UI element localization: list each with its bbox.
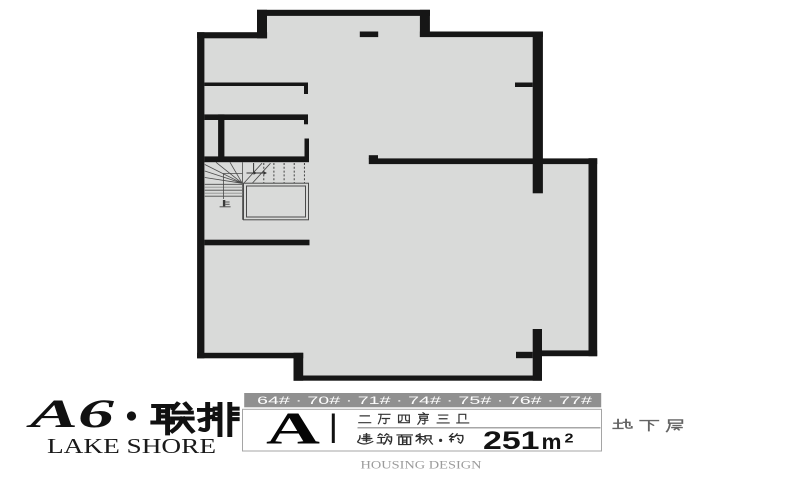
svg-text:A: A (266, 403, 320, 454)
svg-text:251: 251 (483, 427, 540, 455)
svg-text:LAKE SHORE: LAKE SHORE (47, 434, 216, 458)
svg-text:HOUSING DESIGN: HOUSING DESIGN (361, 457, 482, 471)
svg-text:A6: A6 (25, 391, 115, 436)
svg-text:2: 2 (565, 431, 574, 446)
svg-text:m: m (542, 430, 562, 454)
